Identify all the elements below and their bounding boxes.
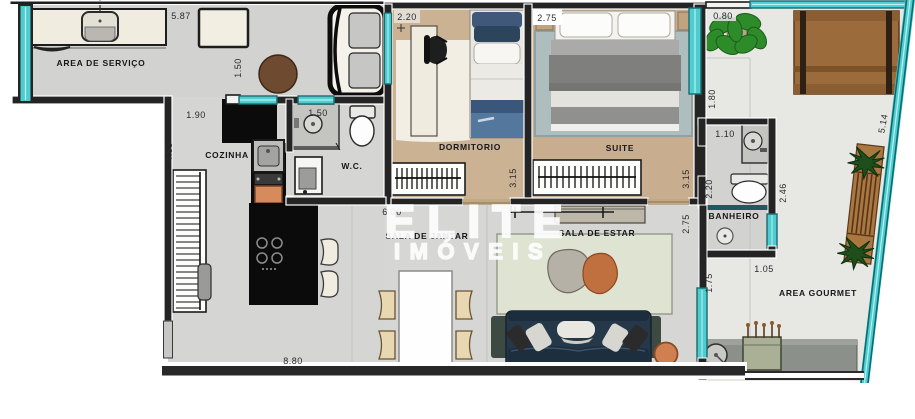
svg-text:4.53: 4.53 <box>164 142 174 162</box>
svg-text:3.15: 3.15 <box>681 169 691 189</box>
svg-text:AREA GOURMET: AREA GOURMET <box>779 288 857 298</box>
svg-text:1.50: 1.50 <box>308 108 328 118</box>
svg-text:IMÓVEIS: IMÓVEIS <box>394 239 552 264</box>
svg-text:W.C.: W.C. <box>341 161 362 171</box>
svg-text:DORMITORIO: DORMITORIO <box>439 142 501 152</box>
svg-text:2.20: 2.20 <box>704 179 714 199</box>
svg-text:8.80: 8.80 <box>283 356 303 366</box>
svg-text:BANHEIRO: BANHEIRO <box>709 211 760 221</box>
svg-text:2.75: 2.75 <box>537 13 557 23</box>
svg-text:1.80: 1.80 <box>707 89 717 109</box>
svg-text:COZINHA: COZINHA <box>205 150 249 160</box>
svg-text:3.15: 3.15 <box>508 168 518 188</box>
svg-text:AREA DE SERVIÇO: AREA DE SERVIÇO <box>57 58 146 68</box>
svg-text:5.87: 5.87 <box>171 11 191 21</box>
svg-text:1.75: 1.75 <box>704 273 714 293</box>
svg-text:2.75: 2.75 <box>681 214 691 234</box>
svg-text:0.80: 0.80 <box>713 11 733 21</box>
svg-text:1.05: 1.05 <box>754 264 774 274</box>
svg-text:SUITE: SUITE <box>606 143 635 153</box>
svg-text:2.46: 2.46 <box>778 183 788 203</box>
svg-text:1.50: 1.50 <box>233 58 243 78</box>
svg-text:1.10: 1.10 <box>715 129 735 139</box>
svg-text:2.20: 2.20 <box>397 12 417 22</box>
svg-text:1.90: 1.90 <box>186 110 206 120</box>
